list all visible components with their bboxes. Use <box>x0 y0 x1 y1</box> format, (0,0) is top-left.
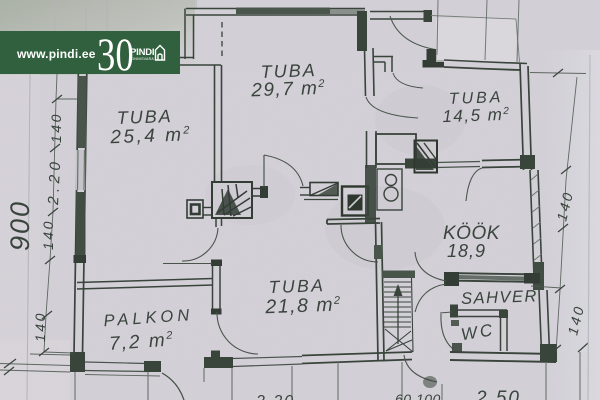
svg-text:SAHVER: SAHVER <box>461 287 538 308</box>
svg-text:2,20: 2,20 <box>255 393 295 400</box>
svg-text:KINNISVARA: KINNISVARA <box>131 57 155 61</box>
svg-text:30: 30 <box>97 29 134 81</box>
svg-text:900: 900 <box>5 200 35 251</box>
svg-text:www.pindi.ee: www.pindi.ee <box>16 47 96 61</box>
svg-text:18,9: 18,9 <box>447 241 486 261</box>
svg-text:140: 140 <box>48 112 64 143</box>
svg-text:140: 140 <box>32 311 48 342</box>
svg-text:29,7 m2: 29,7 m2 <box>250 78 326 102</box>
svg-text:60 100: 60 100 <box>395 391 441 400</box>
svg-text:25,4 m2: 25,4 m2 <box>109 124 192 148</box>
svg-text:140: 140 <box>40 219 56 250</box>
svg-text:2.20: 2.20 <box>45 157 64 206</box>
svg-text:21,8 m2: 21,8 m2 <box>264 294 342 319</box>
svg-text:14,5 m2: 14,5 m2 <box>442 105 511 126</box>
svg-text:2.50: 2.50 <box>475 388 521 400</box>
